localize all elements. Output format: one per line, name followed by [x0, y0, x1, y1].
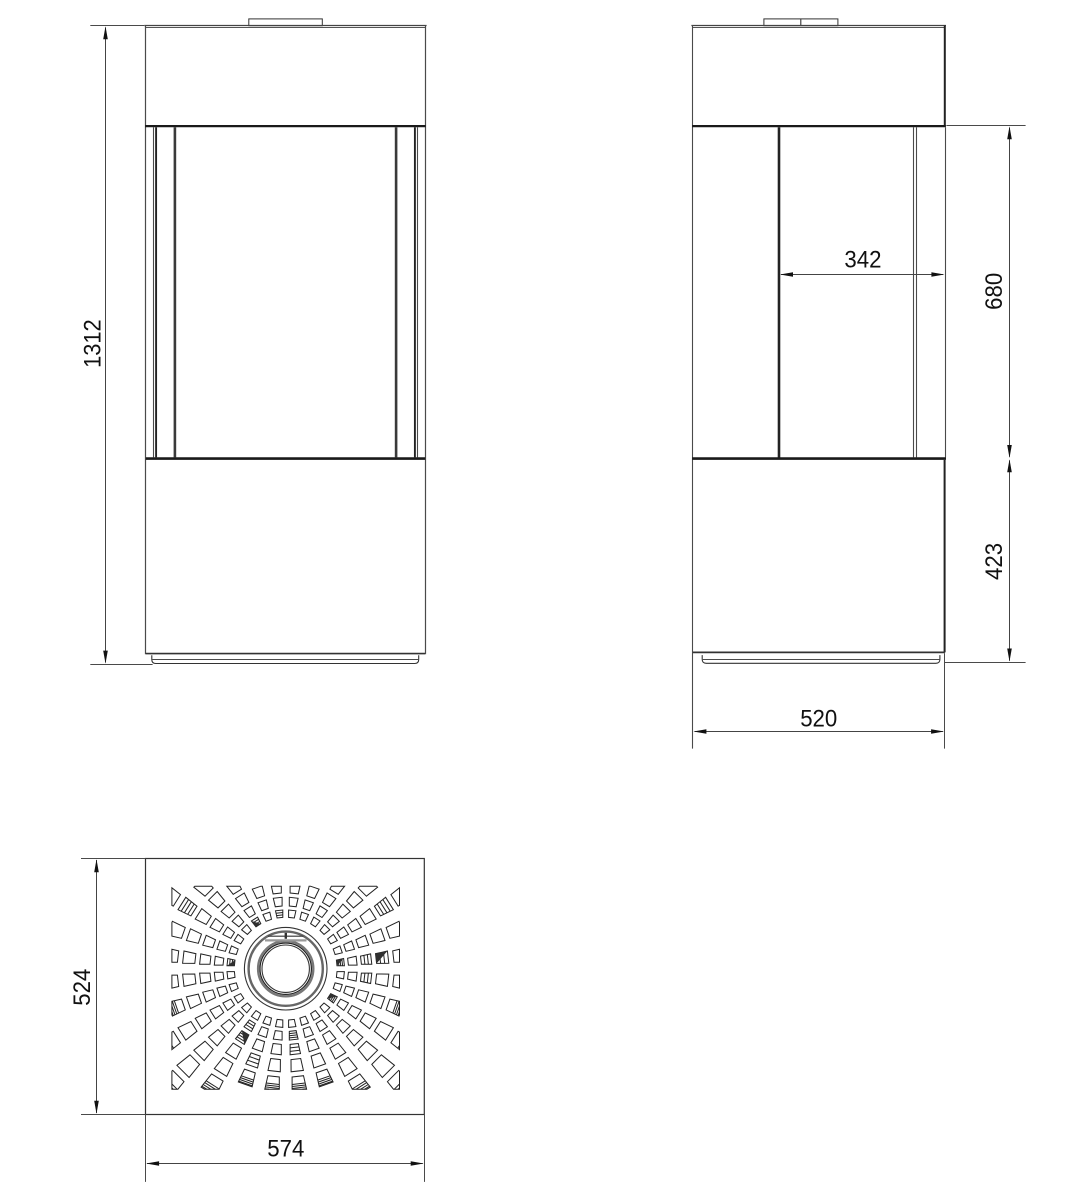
svg-text:574: 574 [267, 1136, 304, 1163]
svg-text:342: 342 [844, 246, 881, 273]
svg-text:1312: 1312 [79, 319, 106, 368]
svg-text:680: 680 [981, 273, 1008, 310]
svg-text:524: 524 [69, 969, 96, 1006]
svg-text:520: 520 [800, 705, 837, 732]
svg-text:423: 423 [981, 543, 1008, 580]
